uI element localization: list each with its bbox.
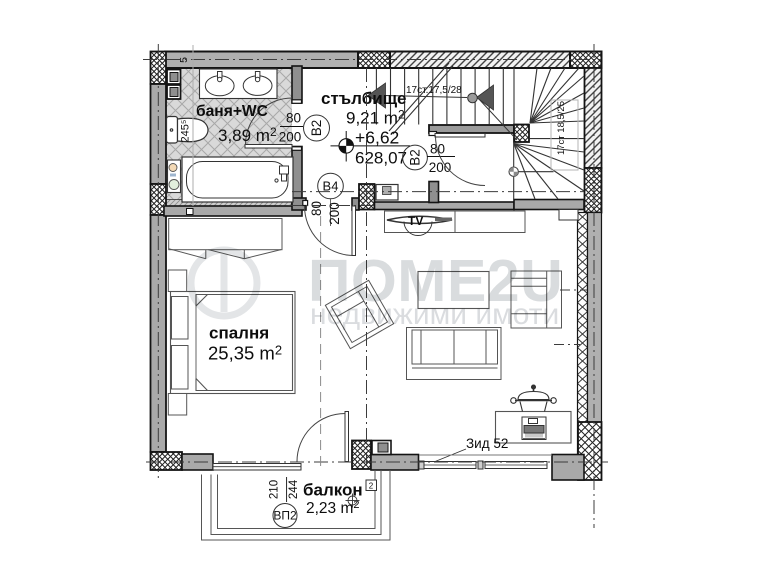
- svg-text:В2: В2: [309, 120, 324, 137]
- svg-text:В2: В2: [408, 149, 423, 166]
- svg-text:Зид 52: Зид 52: [466, 436, 508, 451]
- svg-text:спалня: спалня: [209, 324, 269, 343]
- svg-text:80: 80: [309, 201, 324, 216]
- svg-text:баня+WC: баня+WC: [196, 103, 268, 120]
- svg-text:балкон: балкон: [303, 481, 363, 500]
- svg-text:стълбище: стълбище: [321, 89, 407, 108]
- svg-text:245⁵: 245⁵: [180, 120, 192, 143]
- svg-text:25,35 m2: 25,35 m2: [208, 343, 282, 364]
- svg-text:TV: TV: [408, 214, 423, 228]
- svg-text:210: 210: [269, 480, 281, 499]
- svg-text:недвижими имоти: недвижими имоти: [310, 298, 559, 331]
- svg-text:2,23 m2: 2,23 m2: [306, 499, 360, 517]
- svg-text:17ст 18,5/25: 17ст 18,5/25: [556, 101, 567, 155]
- svg-text:+6,62: +6,62: [355, 127, 399, 147]
- svg-text:200: 200: [279, 130, 302, 145]
- svg-text:ВП2: ВП2: [273, 509, 297, 523]
- svg-text:244: 244: [288, 479, 300, 499]
- svg-text:17ст.17,5/28: 17ст.17,5/28: [406, 85, 462, 96]
- svg-text:3,89 m2: 3,89 m2: [218, 125, 277, 145]
- svg-text:9,21 m2: 9,21 m2: [346, 108, 405, 128]
- svg-text:628,07: 628,07: [355, 149, 407, 168]
- svg-text:200: 200: [429, 160, 452, 175]
- svg-text:80: 80: [286, 111, 301, 126]
- svg-text:2: 2: [369, 482, 374, 491]
